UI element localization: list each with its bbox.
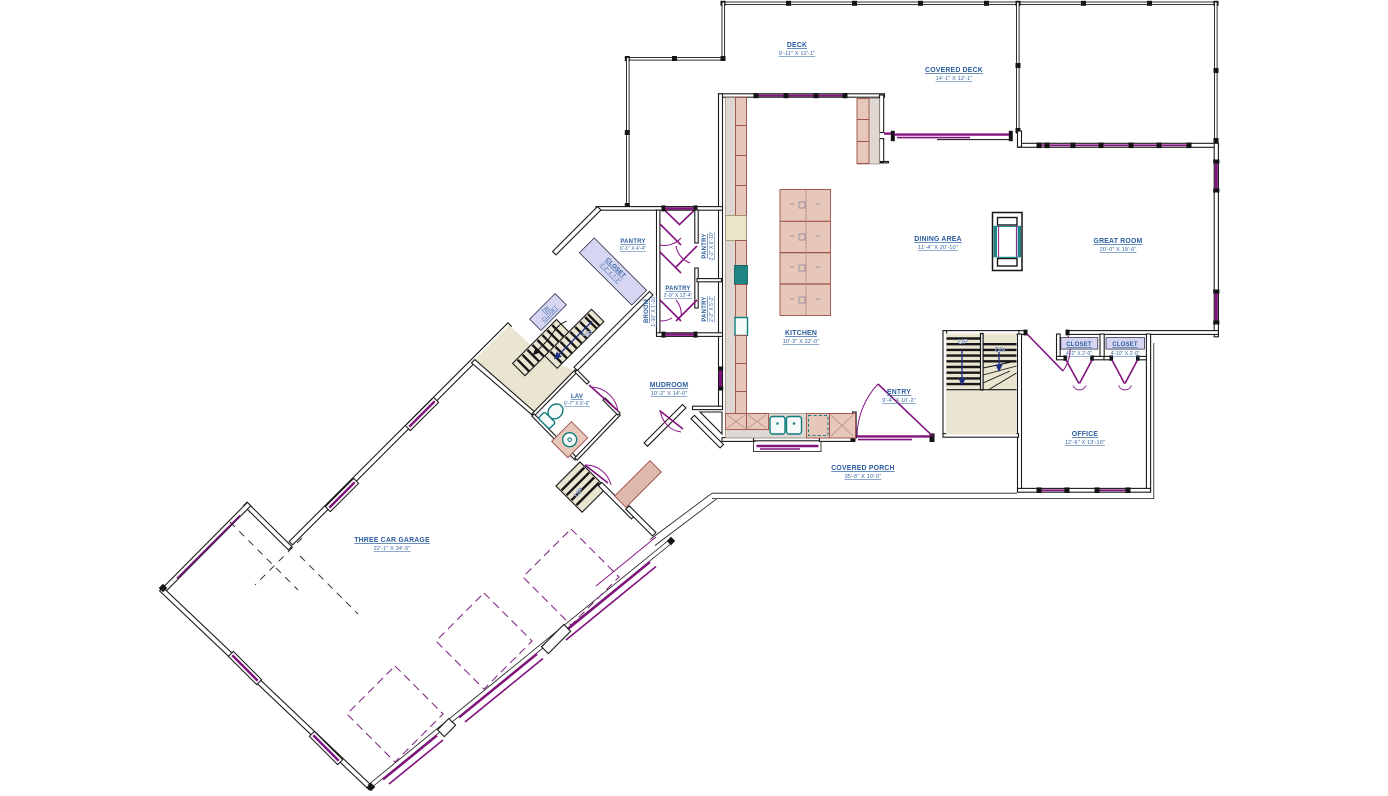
svg-text:GREAT ROOM: GREAT ROOM: [1094, 238, 1143, 245]
svg-text:22'-1" X 34'-5": 22'-1" X 34'-5": [374, 546, 411, 552]
svg-text:2'-2" X 6'-10": 2'-2" X 6'-10": [709, 231, 715, 260]
svg-text:6'-1" X 4'-4": 6'-1" X 4'-4": [620, 246, 646, 252]
svg-text:1'-10" X 1'-10": 1'-10" X 1'-10": [651, 295, 657, 327]
svg-text:4'-10" X 2'-0": 4'-10" X 2'-0": [1111, 351, 1140, 357]
svg-text:PANTRY: PANTRY: [665, 286, 690, 292]
svg-text:9'-11" X 12'-1": 9'-11" X 12'-1": [779, 51, 815, 57]
svg-text:35'-6" X 10'-0": 35'-6" X 10'-0": [845, 474, 882, 480]
svg-text:DINING AREA: DINING AREA: [914, 236, 962, 243]
svg-text:6'-7" X 6'-6": 6'-7" X 6'-6": [564, 401, 590, 407]
svg-text:14'-1" X 12'-1": 14'-1" X 12'-1": [936, 76, 973, 82]
svg-text:CLOSET: CLOSET: [1066, 342, 1092, 348]
svg-text:4'-2" X 2'-0": 4'-2" X 2'-0": [1066, 351, 1092, 357]
svg-text:OFFICE: OFFICE: [1072, 431, 1099, 438]
svg-text:DECK: DECK: [787, 42, 807, 49]
svg-text:MUDROOM: MUDROOM: [650, 382, 689, 389]
svg-text:BROOM: BROOM: [644, 299, 650, 323]
svg-text:2'-9" X 12'-4": 2'-9" X 12'-4": [664, 293, 693, 299]
svg-text:UP: UP: [582, 329, 592, 338]
svg-text:CLOSET: CLOSET: [1112, 342, 1138, 348]
svg-text:DN: DN: [995, 345, 1006, 354]
svg-text:COVERED PORCH: COVERED PORCH: [831, 465, 894, 472]
svg-text:UP: UP: [958, 337, 968, 346]
svg-text:THREE CAR GARAGE: THREE CAR GARAGE: [354, 537, 430, 544]
svg-text:11'-4" X 20'-10": 11'-4" X 20'-10": [918, 245, 958, 251]
svg-text:2'-2" X 5'-2": 2'-2" X 5'-2": [709, 296, 715, 322]
svg-text:9'-4" X 10'-2": 9'-4" X 10'-2": [882, 398, 916, 404]
svg-text:PANTRY: PANTRY: [702, 296, 708, 321]
svg-text:10'-3" X 22'-0": 10'-3" X 22'-0": [783, 339, 820, 345]
svg-text:LAV: LAV: [571, 394, 583, 400]
svg-text:KITCHEN: KITCHEN: [785, 330, 817, 337]
svg-text:COVERED DECK: COVERED DECK: [925, 67, 983, 74]
svg-text:PANTRY: PANTRY: [702, 233, 708, 258]
svg-text:10'-2" X 14'-0": 10'-2" X 14'-0": [651, 391, 688, 397]
svg-text:PANTRY: PANTRY: [620, 239, 645, 245]
svg-text:20'-0" X 19'-6": 20'-0" X 19'-6": [1100, 247, 1137, 253]
svg-text:ENTRY: ENTRY: [887, 389, 911, 396]
svg-text:12'-6" X 13'-10": 12'-6" X 13'-10": [1065, 440, 1105, 446]
